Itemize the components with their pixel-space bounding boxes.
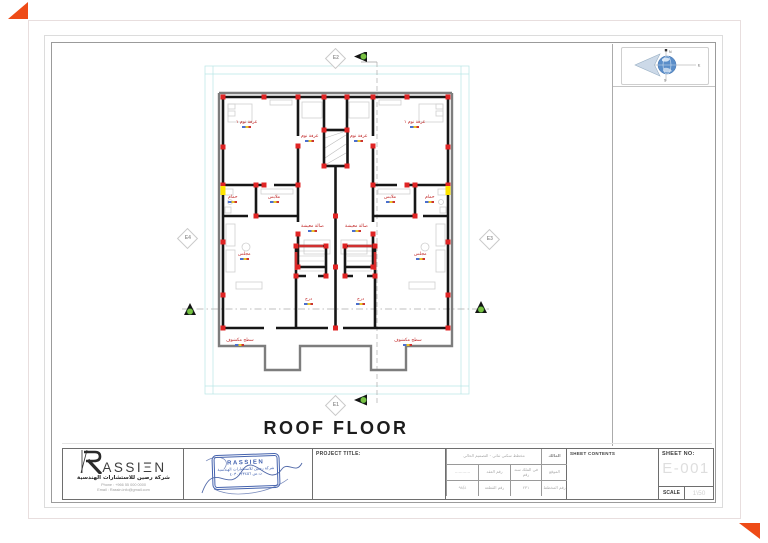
- sheet-no-value: E-001: [659, 460, 713, 477]
- floor-plan-drawing: [178, 52, 500, 414]
- signature-icon: [184, 449, 313, 499]
- project-title-cell: PROJECT TITLE:: [313, 449, 446, 499]
- svg-text:E: E: [698, 64, 701, 68]
- corner-triangle-top-left-icon: [8, 2, 28, 19]
- logo-r-icon: [80, 450, 102, 474]
- scale-label: SCALE: [659, 487, 685, 499]
- logo-text: ASSIΞN: [102, 461, 166, 474]
- logo-subtitle: شركة رصين للاستشارات الهندسية: [63, 475, 184, 481]
- info-cell: ٩٨/٤: [446, 481, 478, 496]
- sheet-no-label: SHEET NO:: [662, 451, 695, 457]
- walls: [223, 97, 448, 328]
- scale-value: 1\50: [685, 487, 713, 499]
- compass-icon: N E S: [622, 48, 706, 82]
- info-cell: ٢٣١: [510, 481, 541, 496]
- elevation-label: E2: [329, 55, 342, 61]
- elevation-label: E3: [483, 236, 496, 242]
- stamp-cell: RASSIEN شركة رصين للاستشارات الهندسية ت.…: [184, 449, 313, 499]
- info-table-cell: مخطط سكني ثنائي - التصميم الحالي المالك …: [446, 449, 567, 499]
- compass-cell: N E S: [613, 44, 715, 87]
- svg-text:N: N: [669, 50, 672, 54]
- sheet-contents-cell: SHEET CONTENTS: [567, 449, 659, 499]
- info-header: مخطط سكني ثنائي - التصميم الحالي: [446, 449, 541, 465]
- logo-email: Email : Rassin.info@gmail.com: [63, 488, 184, 493]
- info-owner-label: المالك: [541, 449, 567, 465]
- info-cell: رقم العقد: [478, 465, 510, 481]
- north-arrow-box: N E S: [621, 47, 709, 85]
- sheet-contents-label: SHEET CONTENTS: [570, 451, 615, 456]
- info-cell: في الملك سند رقم: [510, 465, 541, 481]
- logo-cell: ASSIΞN شركة رصين للاستشارات الهندسية Pho…: [63, 449, 184, 499]
- title-block: ASSIΞN شركة رصين للاستشارات الهندسية Pho…: [62, 448, 714, 500]
- sheet-no-cell: SHEET NO: E-001 SCALE 1\50: [659, 449, 713, 499]
- plan-title: ROOF FLOOR: [236, 418, 436, 439]
- project-title-label: PROJECT TITLE:: [316, 451, 361, 457]
- info-cell: رقم القطعة: [478, 481, 510, 496]
- elevator-shaft: [324, 130, 348, 166]
- divider-line: [62, 443, 712, 444]
- corner-triangle-bottom-right-icon: [739, 523, 760, 539]
- info-location-label: الموقع: [541, 465, 567, 481]
- right-margin-column: N E S: [612, 44, 715, 446]
- elevation-label: E1: [329, 402, 342, 408]
- drawing-sheet: N E S: [0, 0, 768, 543]
- info-cell: ............: [446, 465, 478, 481]
- elevation-label: E4: [181, 235, 194, 241]
- svg-text:S: S: [664, 79, 667, 83]
- info-plan-no-label: رقم المخطط: [541, 481, 567, 496]
